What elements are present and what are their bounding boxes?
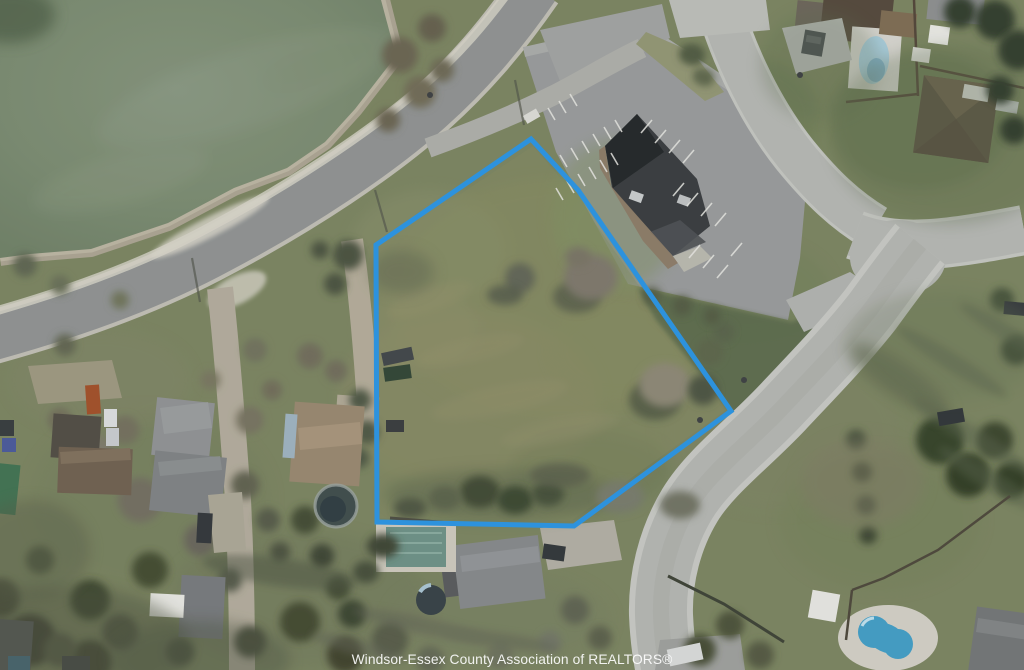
svg-text:Windsor-Essex County Associati: Windsor-Essex County Association of REAL…: [352, 652, 673, 667]
